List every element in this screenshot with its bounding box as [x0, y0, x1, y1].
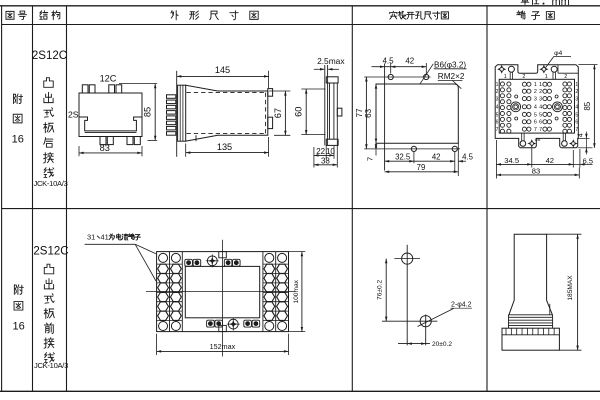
svg-text:6: 6 — [534, 120, 537, 126]
svg-text:4: 4 — [539, 105, 542, 111]
svg-text:4: 4 — [496, 105, 499, 111]
svg-text:2: 2 — [539, 89, 542, 95]
svg-text:5: 5 — [534, 112, 537, 118]
svg-text:63: 63 — [364, 108, 373, 117]
svg-text:4: 4 — [578, 133, 585, 137]
svg-text:RM2×2: RM2×2 — [438, 72, 465, 81]
svg-text:1: 1 — [539, 82, 542, 88]
svg-text:79: 79 — [417, 163, 426, 172]
svg-text:32.5: 32.5 — [395, 153, 411, 162]
svg-text:42: 42 — [432, 153, 441, 162]
svg-text:1: 1 — [575, 82, 578, 88]
svg-text:10: 10 — [326, 147, 335, 156]
svg-text:5: 5 — [496, 112, 499, 118]
svg-text:4: 4 — [534, 105, 537, 111]
svg-text:152max: 152max — [210, 342, 236, 351]
svg-text:42: 42 — [546, 156, 554, 165]
svg-text:85: 85 — [583, 101, 592, 110]
svg-text:34.5: 34.5 — [504, 156, 519, 165]
svg-text:3: 3 — [534, 97, 537, 103]
svg-text:2: 2 — [522, 74, 525, 80]
svg-text:77: 77 — [355, 108, 364, 117]
svg-text:2-φ4.2: 2-φ4.2 — [451, 302, 472, 309]
svg-text:1: 1 — [496, 82, 499, 88]
svg-text:16: 16 — [12, 320, 24, 332]
svg-text:1: 1 — [504, 74, 507, 80]
svg-text:JCK-10A/3: JCK-10A/3 — [33, 179, 67, 188]
svg-text:60: 60 — [294, 107, 304, 117]
svg-text:2: 2 — [496, 89, 499, 95]
svg-text:B6(φ3.2): B6(φ3.2) — [434, 61, 466, 70]
svg-text:42: 42 — [405, 57, 414, 66]
svg-text:4.5: 4.5 — [382, 57, 394, 66]
svg-text:4.5: 4.5 — [462, 153, 474, 162]
svg-text:185MAX: 185MAX — [567, 275, 574, 301]
svg-text:6.5: 6.5 — [583, 157, 593, 166]
svg-text:41: 41 — [101, 233, 109, 242]
svg-text:φ8: φ8 — [535, 137, 541, 143]
svg-text:100max: 100max — [293, 279, 300, 303]
svg-text:7: 7 — [534, 127, 537, 133]
svg-text:mm: mm — [552, 0, 570, 8]
svg-text:83: 83 — [100, 143, 110, 153]
svg-text:76±0.2: 76±0.2 — [377, 280, 384, 300]
svg-text:6: 6 — [496, 120, 499, 126]
svg-text:7: 7 — [539, 127, 542, 133]
svg-text:6: 6 — [575, 120, 578, 126]
svg-text:3: 3 — [575, 97, 578, 103]
svg-text:22: 22 — [316, 147, 325, 156]
svg-text:2S12C: 2S12C — [32, 50, 67, 62]
svg-text:JCK-10A/3: JCK-10A/3 — [34, 361, 68, 370]
svg-text:6: 6 — [539, 120, 542, 126]
svg-text:2S12C: 2S12C — [33, 246, 68, 258]
svg-text:31: 31 — [87, 233, 95, 242]
svg-text:85: 85 — [143, 107, 153, 117]
svg-text:4: 4 — [575, 105, 578, 111]
svg-text:2.5max: 2.5max — [317, 56, 345, 66]
svg-text:16: 16 — [12, 134, 24, 146]
svg-text:5: 5 — [575, 112, 578, 118]
svg-text:3: 3 — [496, 97, 499, 103]
svg-text:12C: 12C — [100, 73, 117, 83]
svg-text:20±0.2: 20±0.2 — [432, 341, 452, 348]
svg-text:2: 2 — [564, 74, 567, 80]
svg-text:2: 2 — [575, 89, 578, 95]
svg-text:1: 1 — [534, 82, 537, 88]
svg-text:2: 2 — [534, 89, 537, 95]
svg-text:2S: 2S — [68, 110, 79, 120]
svg-text:φ4: φ4 — [554, 50, 562, 57]
svg-text:135: 135 — [217, 142, 232, 152]
svg-text:1: 1 — [545, 74, 548, 80]
svg-text:3: 3 — [539, 97, 542, 103]
svg-text:7: 7 — [496, 127, 499, 133]
svg-text:145: 145 — [215, 65, 230, 75]
svg-text:67: 67 — [273, 108, 283, 118]
svg-text:7: 7 — [575, 127, 578, 133]
svg-text:7: 7 — [365, 157, 374, 161]
svg-text:83: 83 — [532, 166, 540, 175]
svg-text:38: 38 — [321, 156, 330, 165]
svg-text:5: 5 — [539, 112, 542, 118]
